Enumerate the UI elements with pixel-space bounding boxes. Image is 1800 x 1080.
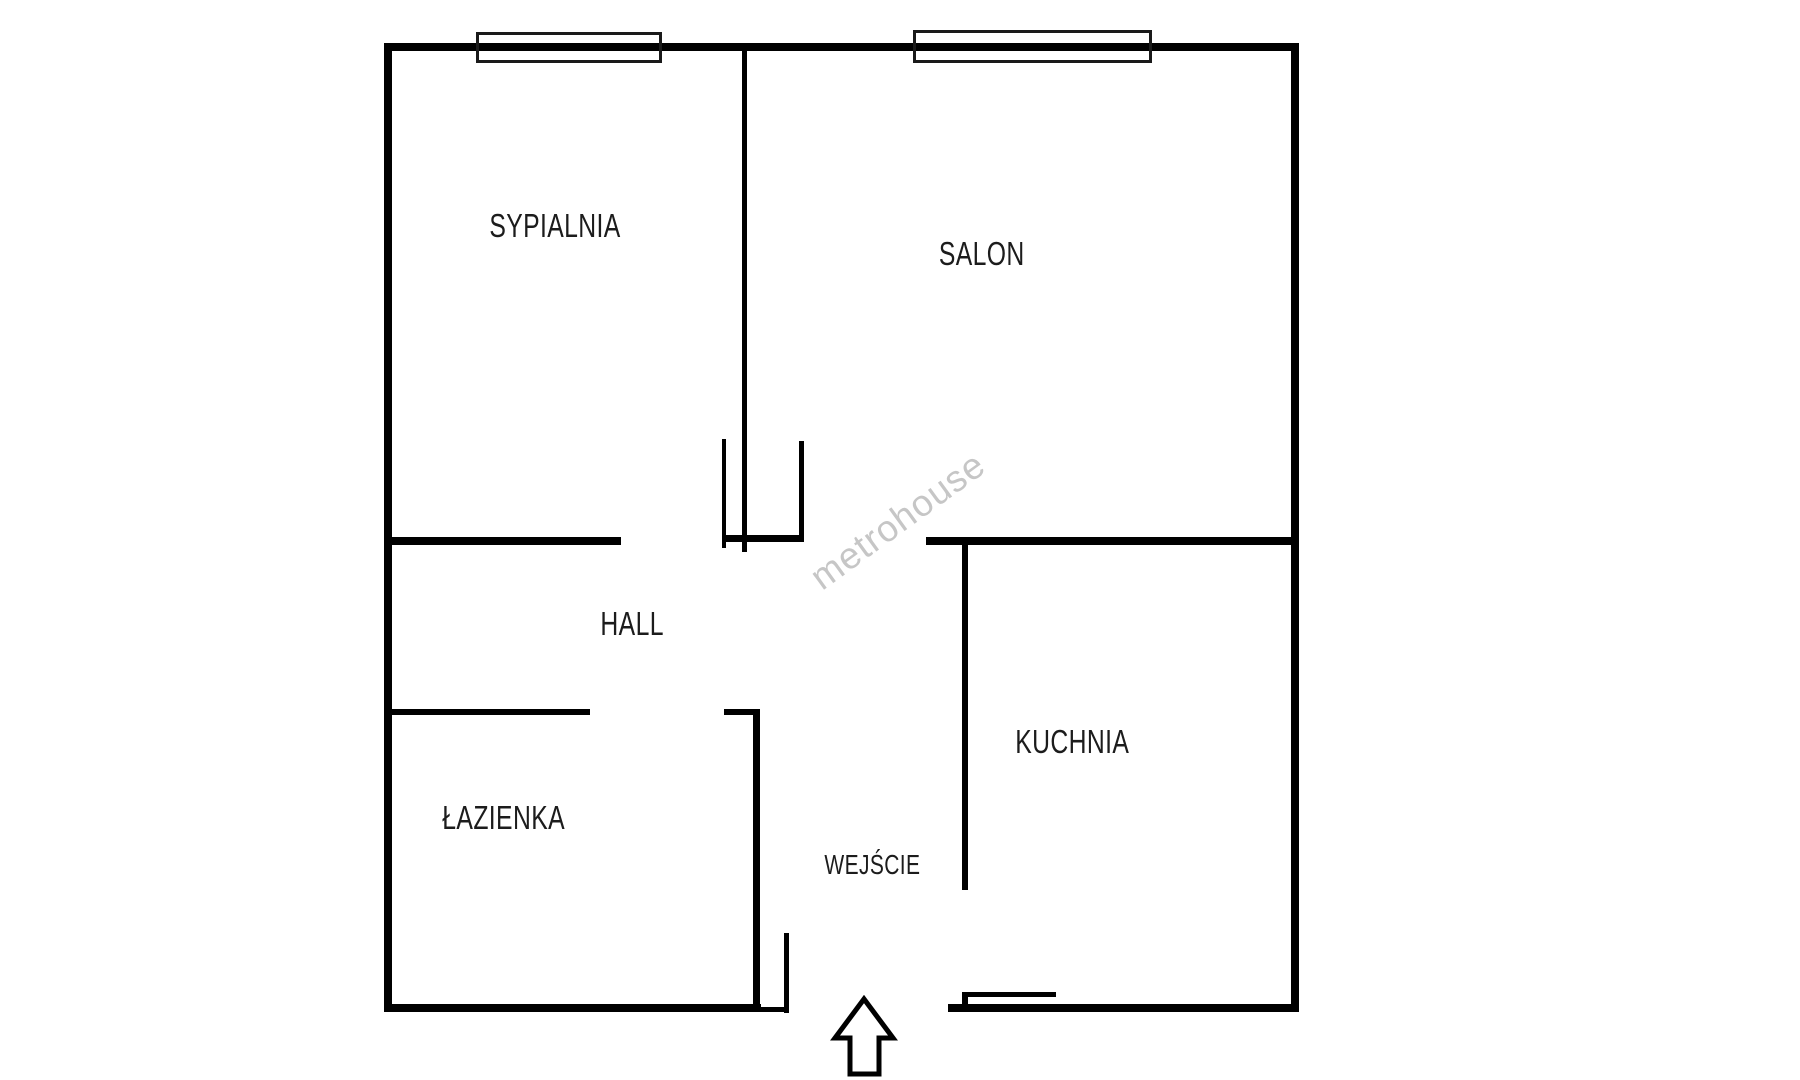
door-sill [722, 535, 804, 542]
bathroom-right-wall [753, 709, 760, 1012]
entrance-jamb [784, 933, 789, 1013]
kitchen-left-wall [962, 545, 968, 890]
room-label-hall: HALL [600, 605, 663, 643]
bedroom-hall-wall [391, 537, 621, 545]
kitchen-entry-tick-post [962, 992, 968, 1004]
salon-kitchen-wall [926, 537, 1291, 545]
entrance-arrow-icon [830, 995, 900, 1080]
entrance-jamb-foot [760, 1007, 789, 1012]
door-jamb-left [722, 439, 726, 548]
room-label-kuchnia: KUCHNIA [1015, 723, 1129, 761]
outer-wall-left [384, 43, 392, 1012]
room-label-lazienka: ŁAZIENKA [442, 799, 565, 837]
window-bedroom [476, 32, 662, 63]
entrance-label: WEJŚCIE [824, 849, 920, 881]
floor-plan: SYPIALNIA SALON HALL ŁAZIENKA KUCHNIA WE… [0, 0, 1800, 1080]
outer-wall-bottom-right [948, 1004, 1299, 1012]
window-salon [913, 30, 1152, 63]
bedroom-salon-divider [742, 51, 747, 552]
outer-wall-right [1291, 43, 1299, 1012]
room-label-sypialnia: SYPIALNIA [489, 207, 620, 245]
door-jamb-right [799, 441, 804, 542]
room-label-salon: SALON [939, 235, 1025, 273]
bathroom-top-wall [391, 709, 590, 715]
kitchen-entry-tick [962, 992, 1056, 997]
floor-plan-drawing: SYPIALNIA SALON HALL ŁAZIENKA KUCHNIA WE… [0, 0, 1800, 1080]
outer-wall-bottom-left [384, 1004, 761, 1012]
